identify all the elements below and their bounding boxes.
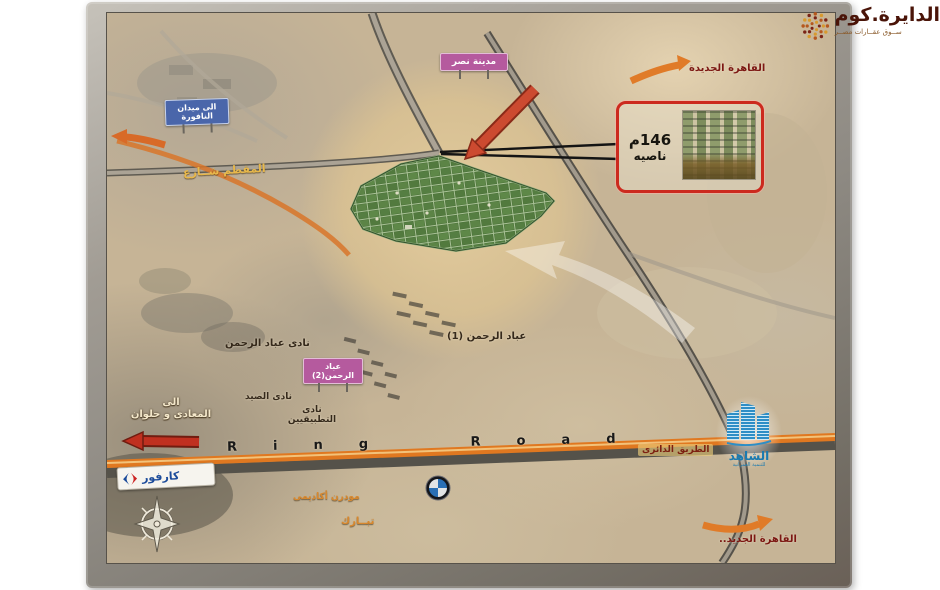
label-ring-road-ar: الطريق الدائرى bbox=[638, 444, 713, 456]
map-artwork bbox=[107, 13, 835, 563]
sign-legs bbox=[459, 70, 489, 79]
new-cairo-top-arrow bbox=[631, 55, 691, 81]
satellite-map: مدينة نصر الى ميدان النافورة عباد الرحمن… bbox=[106, 12, 836, 564]
plot-callout-box: 146م ناصيه bbox=[616, 101, 764, 193]
eldayra-dots-icon bbox=[800, 5, 831, 47]
label-nadi-ebad-elrahman: نادى عباد الرحمن bbox=[225, 338, 310, 350]
shahed-subtitle: للتنمية العمرانية bbox=[716, 462, 782, 468]
building-photo bbox=[682, 110, 756, 180]
sign-legs bbox=[182, 123, 212, 133]
label-to-maadi-helwan: الى المعادى و حلوان bbox=[123, 397, 219, 420]
label-new-cairo-bottom: القاهرة الجديد.. bbox=[719, 534, 797, 546]
sign-ebad2-line1: عباد bbox=[308, 362, 358, 371]
plot-area-value: 146م bbox=[619, 131, 681, 149]
plot-callout-text: 146م ناصيه bbox=[619, 131, 681, 163]
carrefour-diamond-icon bbox=[122, 471, 139, 486]
label-modern-academy: مودرن أكاديمى bbox=[293, 492, 360, 502]
label-tatbiqiyin-line2: التطبيقيين bbox=[283, 415, 341, 425]
sign-ebad-elrahman-2: عباد الرحمن(2) bbox=[303, 358, 363, 384]
label-nadi-elsayd: نادى الصيد bbox=[245, 392, 292, 402]
label-maadi-line2: المعادى و حلوان bbox=[123, 409, 219, 421]
label-new-cairo-top: القاهرة الجديدة bbox=[689, 63, 765, 75]
shahed-name: الشاهد bbox=[716, 450, 782, 462]
carrefour-label: كارفور bbox=[142, 469, 180, 484]
bmw-roundel-icon bbox=[426, 476, 450, 500]
label-nadi-tatbiqiyin: نادى التطبيقيين bbox=[283, 405, 341, 426]
brand-subtitle: ســوق عقــارات مصــر bbox=[835, 28, 902, 36]
label-maadi-line1: الى bbox=[123, 397, 219, 409]
maadi-left-arrow bbox=[123, 432, 199, 450]
sign-ebad2-line2: الرحمن(2) bbox=[308, 371, 358, 380]
sign-legs bbox=[318, 383, 348, 392]
eldayra-brand: الدايرة.كوم ســوق عقــارات مصــر bbox=[800, 5, 940, 55]
sign-nafoura-line2: النافورة bbox=[170, 111, 224, 122]
sign-nasr-city-label: مدينة نصر bbox=[452, 57, 496, 67]
plot-corner-label: ناصيه bbox=[619, 149, 681, 163]
label-tatbiqiyin-line1: نادى bbox=[283, 405, 341, 415]
label-tabarak: تبــارك bbox=[341, 516, 374, 528]
brand-title: الدايرة.كوم bbox=[835, 5, 940, 26]
map-board-page: مدينة نصر الى ميدان النافورة عباد الرحمن… bbox=[0, 0, 940, 590]
sign-nasr-city: مدينة نصر bbox=[440, 53, 508, 71]
sign-nafoura-square: الى ميدان النافورة bbox=[165, 98, 230, 126]
shahed-towers-icon bbox=[725, 398, 773, 446]
label-ebad-elrahman-1: عباد الرحمن (1) bbox=[447, 331, 526, 343]
shahed-logo: الشاهد للتنمية العمرانية bbox=[716, 396, 782, 470]
